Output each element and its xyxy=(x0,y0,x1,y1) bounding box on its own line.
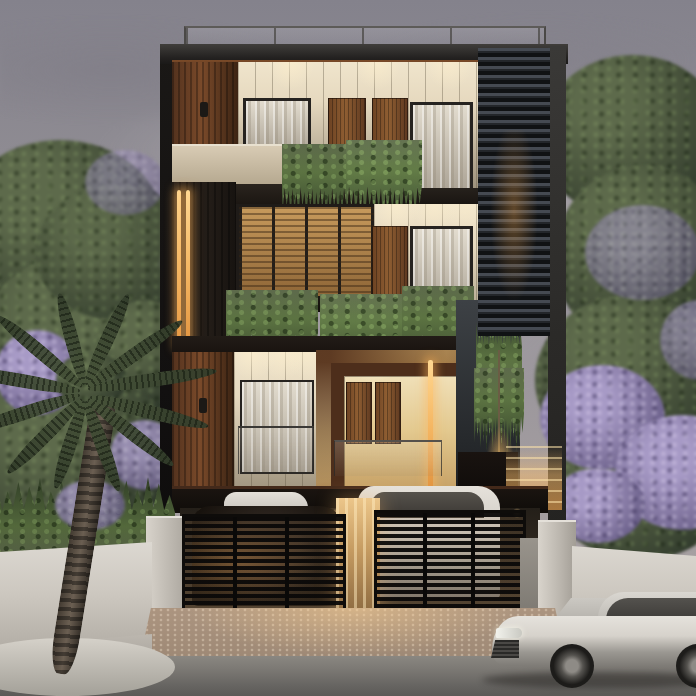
car-body xyxy=(492,616,696,666)
gate-post xyxy=(285,517,289,617)
gate-post xyxy=(423,513,427,611)
purple-blossoms xyxy=(585,205,696,300)
glass-balustrade xyxy=(238,426,314,474)
louver-glow xyxy=(488,130,540,310)
car-headlight xyxy=(496,628,522,638)
wall-sconce xyxy=(200,102,208,117)
entrance-door xyxy=(346,382,372,444)
wall-sconce xyxy=(199,398,207,413)
car-grille xyxy=(491,640,519,658)
purple-blossoms xyxy=(85,150,165,215)
gate-post xyxy=(233,517,237,617)
driveway-gate-right xyxy=(374,510,526,616)
driveway-gate-left xyxy=(182,514,346,622)
led-strip xyxy=(186,190,190,348)
glass-balustrade xyxy=(334,440,442,476)
architectural-render xyxy=(0,0,696,696)
car-wheel-front xyxy=(550,644,594,688)
gate-post xyxy=(471,513,475,611)
entrance-door xyxy=(375,382,401,444)
gate-side-wall xyxy=(520,538,540,612)
